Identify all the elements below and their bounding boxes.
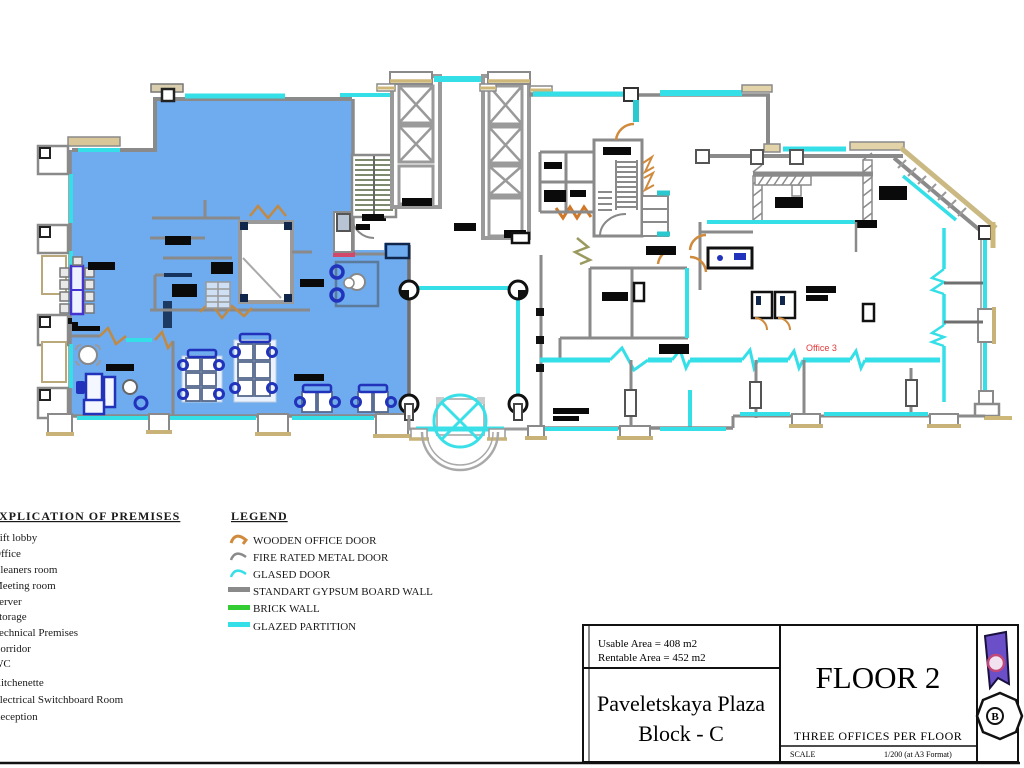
- svg-text:FLOOR 2: FLOOR 2: [816, 660, 941, 695]
- svg-text:Kitchenette: Kitchenette: [0, 677, 44, 689]
- svg-text:Paveletskaya Plaza: Paveletskaya Plaza: [597, 691, 765, 716]
- svg-text:Technical Premises: Technical Premises: [0, 627, 78, 639]
- svg-text:Cleaners room: Cleaners room: [0, 564, 58, 576]
- svg-text:EXPLICATION OF PREMISES: EXPLICATION OF PREMISES: [0, 509, 180, 523]
- svg-text:STANDART GYPSUM BOARD WALL: STANDART GYPSUM BOARD WALL: [253, 586, 433, 598]
- svg-text:1/200 (at A3 Format): 1/200 (at A3 Format): [884, 750, 952, 759]
- svg-text:Corridor: Corridor: [0, 643, 31, 655]
- svg-text:LEGEND: LEGEND: [231, 509, 288, 523]
- svg-text:WOODEN OFFICE DOOR: WOODEN OFFICE DOOR: [253, 535, 377, 547]
- svg-text:Office 3: Office 3: [806, 343, 837, 353]
- svg-text:GLAZED PARTITION: GLAZED PARTITION: [253, 621, 356, 633]
- svg-text:Server: Server: [0, 596, 22, 608]
- svg-text:THREE OFFICES PER FLOOR: THREE OFFICES PER FLOOR: [794, 729, 963, 743]
- svg-text:Rentable Area = 452 m2: Rentable Area = 452 m2: [598, 652, 706, 664]
- svg-text:Lift lobby: Lift lobby: [0, 532, 38, 544]
- svg-text:Meeting room: Meeting room: [0, 580, 56, 592]
- svg-text:Office: Office: [0, 548, 21, 560]
- svg-text:Electrical Switchboard Room: Electrical Switchboard Room: [0, 694, 124, 706]
- svg-text:SCALE: SCALE: [790, 750, 815, 759]
- svg-text:Storage: Storage: [0, 611, 27, 623]
- svg-text:FIRE RATED METAL DOOR: FIRE RATED METAL DOOR: [253, 552, 389, 564]
- svg-text:Block - C: Block - C: [638, 721, 724, 746]
- svg-text:Reception: Reception: [0, 711, 38, 723]
- svg-text:BRICK WALL: BRICK WALL: [253, 603, 320, 615]
- svg-text:GLASED DOOR: GLASED DOOR: [253, 569, 331, 581]
- svg-text:B: B: [991, 711, 999, 723]
- svg-text:WC: WC: [0, 658, 11, 670]
- svg-text:Usable Area = 408 m2: Usable Area = 408 m2: [598, 638, 697, 650]
